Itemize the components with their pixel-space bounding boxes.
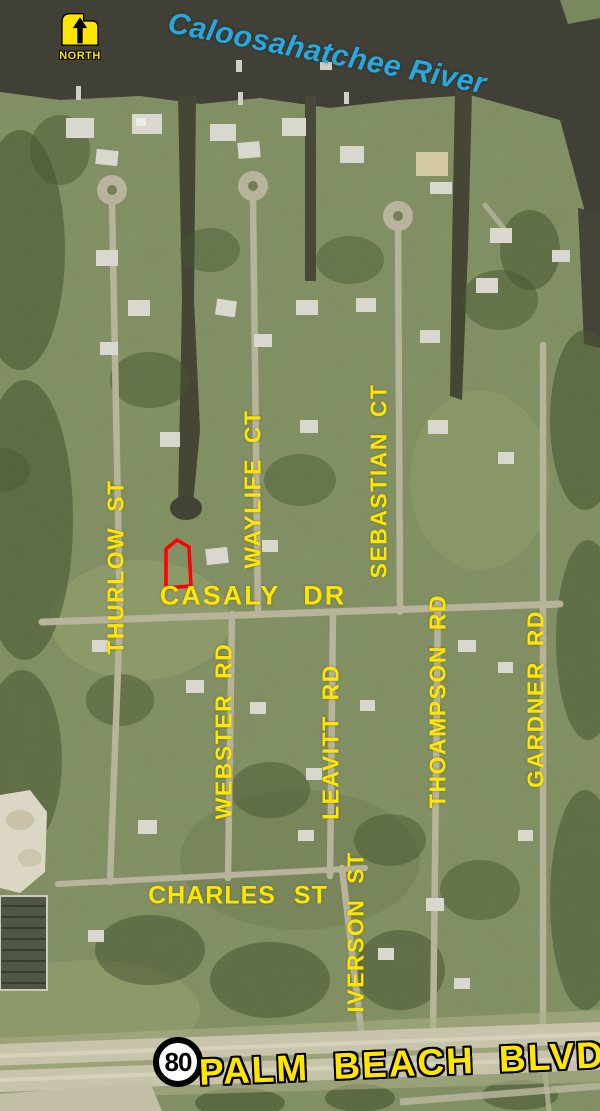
aerial-basemap xyxy=(0,0,600,1111)
street-label-sebastian: SEBASTIAN CT xyxy=(366,384,393,579)
north-marker: NORTH xyxy=(57,11,103,62)
photo-grain xyxy=(0,0,600,1111)
street-label-gardner: GARDNER RD xyxy=(523,610,550,788)
aerial-map: NORTH Caloosahatchee River THURLOW ST WA… xyxy=(0,0,600,1111)
route-number: 80 xyxy=(165,1047,192,1078)
north-arrow-icon xyxy=(59,11,101,47)
street-label-webster: WEBSTER RD xyxy=(211,643,238,820)
street-label-iverson: IVERSON ST xyxy=(343,851,370,1012)
street-label-thoampson: THOAMPSON RD xyxy=(425,594,452,808)
route-80-shield: 80 xyxy=(153,1037,203,1087)
street-label-waylife: WAYLIFE CT xyxy=(240,409,267,568)
street-label-charles: CHARLES ST xyxy=(148,882,328,911)
street-label-leavitt: LEAVITT RD xyxy=(318,664,345,820)
street-label-casaly: CASALY DR xyxy=(160,581,347,612)
north-label: NORTH xyxy=(57,50,103,62)
street-label-thurlow: THURLOW ST xyxy=(103,479,130,654)
